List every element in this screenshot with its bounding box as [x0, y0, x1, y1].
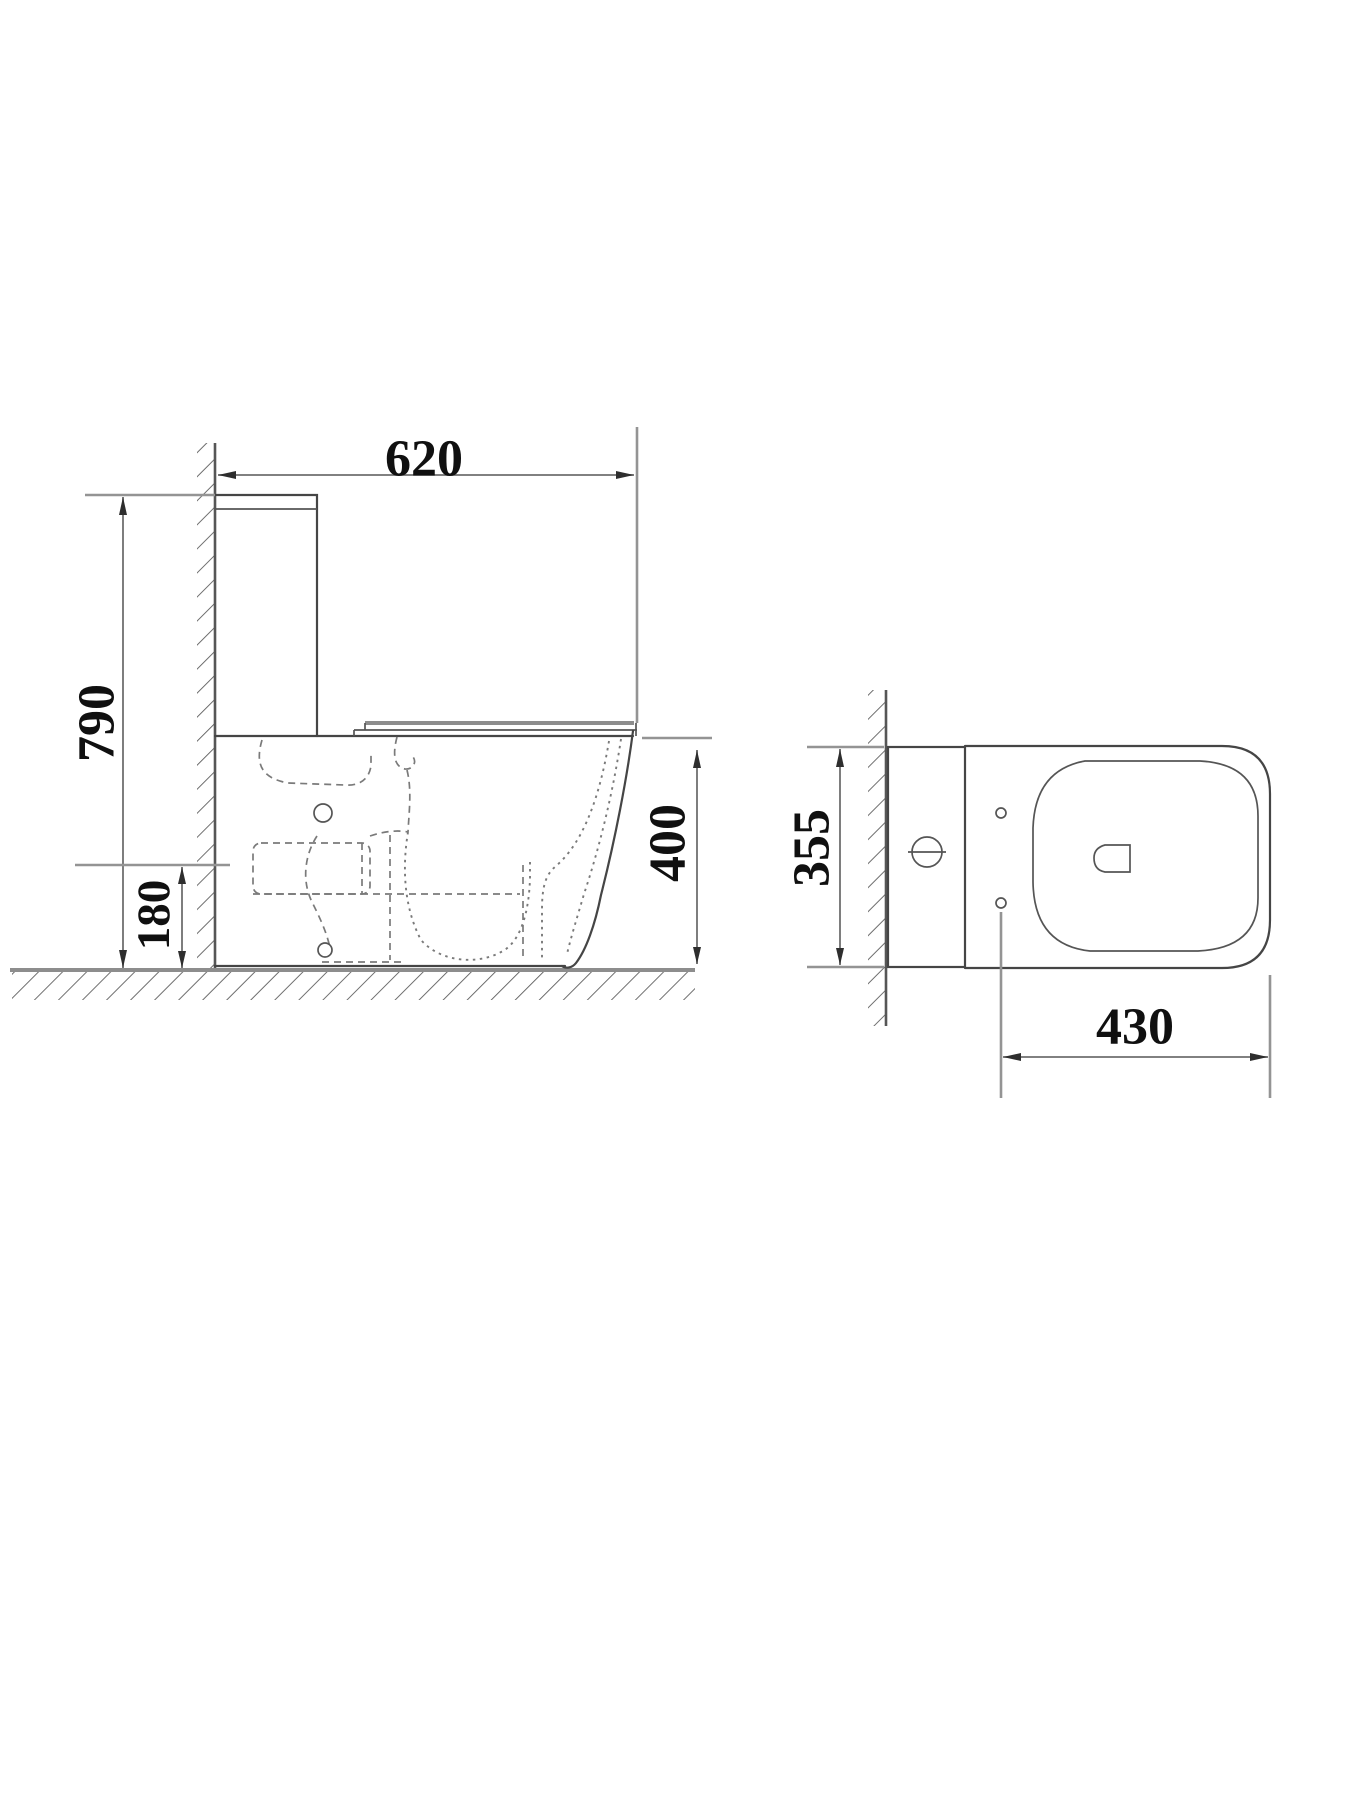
- dim-400-label: 400: [640, 804, 697, 882]
- dim-400: 400: [640, 738, 713, 964]
- seat-profile: [354, 723, 637, 736]
- cistern-tank-outline: [215, 495, 317, 736]
- internal-trap-dashed: [253, 737, 621, 962]
- dim-620-arrow-right: [616, 471, 634, 479]
- fixing-hole-lower: [318, 943, 332, 957]
- trap-inlet-dashed: [306, 836, 330, 948]
- toilet-dimension-diagram: 620 790 180 400: [0, 0, 1350, 1800]
- dim-400-arrow-top: [693, 750, 701, 768]
- dim-620: 620: [218, 427, 637, 723]
- dim-620-arrow-left: [218, 471, 236, 479]
- hinge-bolt-lower: [996, 898, 1006, 908]
- seat-outer-outline: [965, 746, 1270, 968]
- water-spot-outline: [1094, 845, 1130, 872]
- top-wall-hatch: [868, 690, 886, 1026]
- dim-180-label: 180: [128, 880, 180, 951]
- floor: [10, 970, 695, 1000]
- dim-430-arrow-left: [1003, 1053, 1021, 1061]
- dim-355-label: 355: [784, 809, 841, 887]
- tank-top-and-right-edge: [215, 495, 317, 736]
- dim-620-label: 620: [385, 431, 463, 488]
- bowl-inner-front-dotted: [542, 741, 609, 960]
- dim-790-label: 790: [69, 684, 126, 762]
- dim-400-arrow-bottom: [693, 947, 701, 964]
- dim-430-arrow-right: [1250, 1053, 1268, 1061]
- valve-descent-dashed: [407, 770, 410, 832]
- floor-hatch: [12, 972, 695, 1000]
- bowl-sump-dotted: [405, 832, 530, 960]
- dim-180-arrow-bottom: [178, 951, 186, 968]
- side-wall-hatch: [197, 443, 215, 970]
- bowl-front-outline: [215, 731, 633, 968]
- dim-790-arrow-bottom: [119, 950, 127, 968]
- dim-355-arrow-bottom: [836, 948, 844, 965]
- bowl-opening-outline: [1033, 761, 1258, 951]
- dim-430: 430: [1001, 912, 1270, 1098]
- top-wall: [868, 690, 886, 1026]
- rim-channel-dashed: [259, 740, 371, 785]
- seat-plan: [965, 746, 1270, 968]
- side-view: 620 790 180 400: [10, 427, 712, 1000]
- tank-plan: [888, 747, 965, 967]
- inlet-valve-box-dashed: [253, 843, 370, 894]
- technical-drawing-page: 620 790 180 400: [0, 0, 1350, 1800]
- dim-355-arrow-top: [836, 749, 844, 767]
- side-wall: [197, 443, 215, 970]
- hinge-bolt-upper: [996, 808, 1006, 818]
- flush-valve-curl-dashed: [395, 737, 415, 769]
- dim-790-arrow-top: [119, 497, 127, 515]
- top-view: 355 430: [784, 690, 1271, 1098]
- tank-plan-outline: [888, 747, 965, 967]
- fixing-hole-upper: [314, 804, 332, 822]
- dim-430-label: 430: [1096, 999, 1174, 1056]
- channel-link-dashed: [370, 831, 408, 836]
